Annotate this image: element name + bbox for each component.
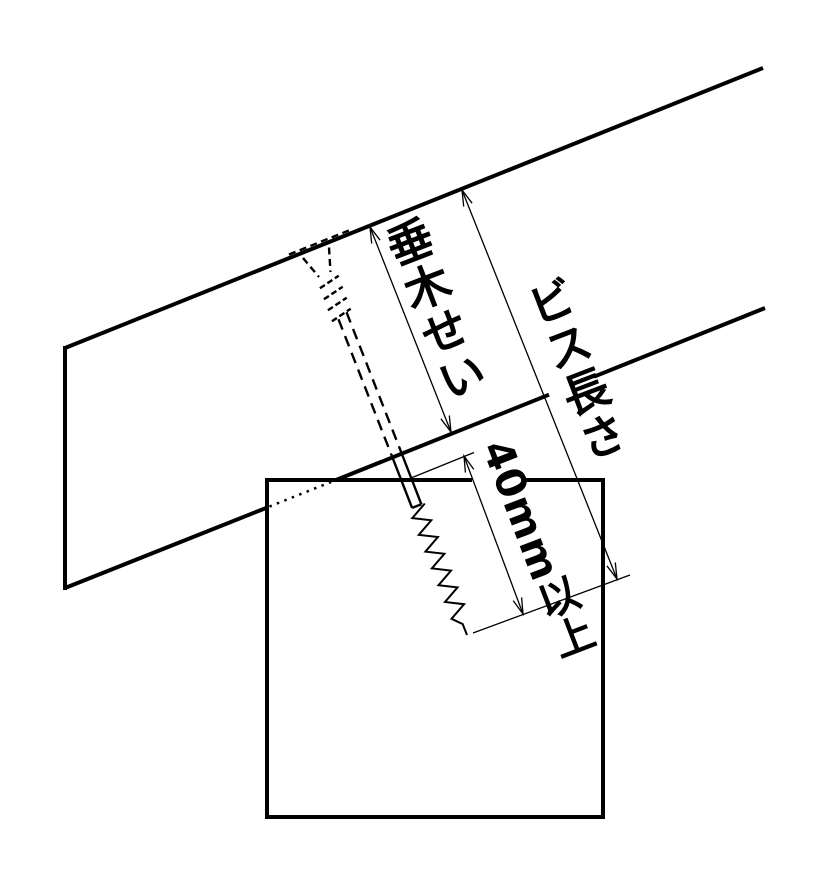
technical-drawing-canvas: 垂木せい ビス長さ 40mm以上 <box>0 0 832 878</box>
screw-head-top-dashes <box>289 229 352 254</box>
screw-shank-hidden-left <box>339 319 393 457</box>
screw-neck-threads <box>320 276 351 322</box>
rafter-bottom-edge-right <box>594 308 765 377</box>
screw-shank-hidden-right <box>347 312 402 453</box>
drawing-linework <box>0 0 832 878</box>
rafter-bottom-edge-hidden <box>262 480 336 510</box>
screw-shank-left <box>392 457 412 508</box>
screw-head-taper-left <box>303 258 319 277</box>
screw-head-taper-right <box>329 248 331 273</box>
screw-thread-start-tick <box>412 504 421 508</box>
screw-thread-zigzag <box>412 504 467 636</box>
rafter-bottom-edge-left <box>65 508 267 588</box>
